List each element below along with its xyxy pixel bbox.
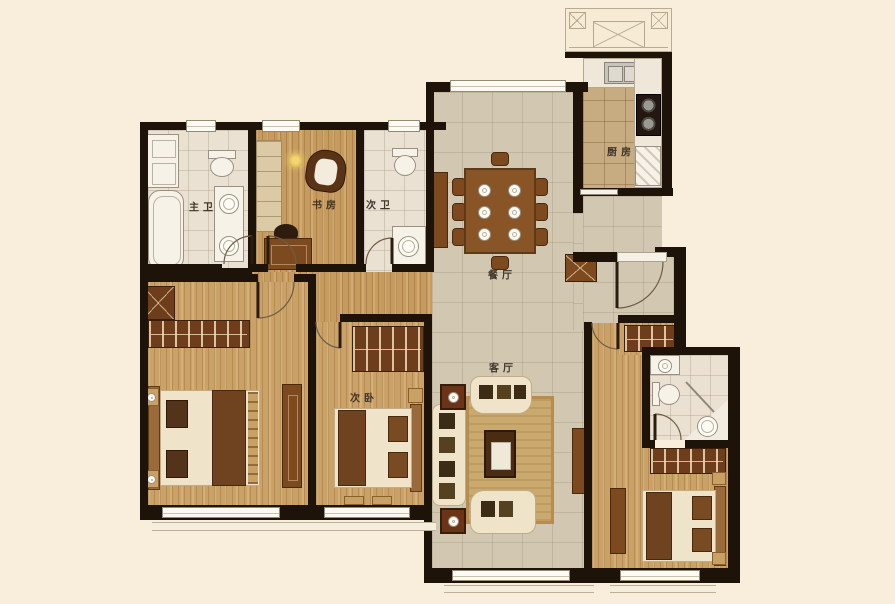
washer-door [152,140,176,158]
room-label-second-bedroom: 次卧 [350,390,378,405]
wall [618,315,676,323]
dining-chair [534,203,548,221]
duct-shaft [651,12,668,29]
floor-plan: 主卫 书房 次卫 餐厅 厨房 客厅 次卧 [0,0,895,604]
wall [573,252,617,262]
dining-chair [534,228,548,246]
dresser-suite [610,488,626,554]
bed-blanket [212,390,246,486]
sofa-main [432,404,466,506]
wall [356,122,364,272]
toilet-bowl [394,155,416,176]
coffee-table [484,430,516,478]
wall [140,122,148,520]
place-setting [478,228,491,241]
lamp-table [440,384,466,410]
bed-runner-fringe [248,392,258,484]
dining-chair [491,152,509,166]
window [186,120,216,132]
dining-chair [534,178,548,196]
sink-suite [658,359,672,373]
wall [426,82,434,272]
toilet-second [390,148,422,178]
armchair-cushion [313,158,338,187]
wardrobe-suite [650,448,726,474]
wall [296,264,366,272]
room-label-living: 客厅 [489,360,517,375]
toilet-bowl [658,384,680,405]
room-label-second-bath: 次卫 [366,197,394,212]
bay-window-sill [152,522,436,531]
sofa-cushion [479,385,493,399]
window [452,570,570,581]
lamp-table [440,508,466,534]
bed-pillow [692,496,712,520]
bench-stool [372,496,392,505]
elevator-lobby [565,8,672,52]
room-label-master-bath: 主卫 [189,199,217,214]
toilet-suite [652,378,682,410]
bench-stool [344,496,364,505]
cabinet-front [152,163,176,185]
wall [392,264,432,272]
bay-window-sill [610,585,716,593]
sink-2 [219,236,239,256]
lamp [448,516,459,527]
wall [642,440,655,448]
nightstand [712,552,726,565]
sideboard [432,172,448,248]
lamp [147,393,156,402]
shower-basin [697,416,718,437]
bed-pillow [388,452,408,478]
sofa-cushion [481,501,495,517]
desk-top [271,245,307,265]
sink-basin-left [608,66,623,82]
bed-pillow [692,528,712,552]
wall [685,440,738,448]
wall [674,247,686,355]
bed-blanket [646,492,672,560]
duct-shaft [569,12,586,29]
dresser-master [282,384,302,488]
wall [642,347,740,355]
window [450,80,566,92]
coffee-table-tray [491,442,511,470]
wall [140,274,258,282]
sofa-cushion [439,461,455,477]
window [388,120,420,132]
window [324,507,410,518]
place-setting [478,206,491,219]
wall [662,50,672,196]
wall [584,322,592,568]
loveseat [470,376,532,414]
bed-blanket [338,410,366,486]
sink-1 [219,194,239,214]
entry-hall-floor [583,196,662,252]
room-label-kitchen: 厨房 [607,144,635,159]
sofa-cushion [497,385,511,399]
elevator-shaft [593,21,645,48]
bed-master [148,386,260,490]
wardrobe-master [148,320,250,348]
sofa-cushion [514,385,526,399]
sink-second [398,236,419,257]
fridge [635,146,661,186]
wall [642,352,650,448]
wall [248,122,256,272]
lamp [147,475,156,484]
window [262,120,300,132]
ceiling-lamp [288,153,303,168]
bed-pillow [166,400,188,428]
bathtub-inner [153,196,181,266]
entry-door-threshold [617,252,667,262]
washer-cabinet [147,134,179,188]
wardrobe-second [352,326,424,372]
wall [250,264,268,272]
lobby-line [569,47,668,48]
suite-bath-sink-counter [650,355,680,375]
lamp [448,392,459,403]
window [162,507,280,518]
sofa-cushion [439,413,455,429]
sofa-cushion [499,501,513,517]
room-label-dining: 餐厅 [488,267,516,282]
gas-stove [636,94,661,136]
wall [308,274,316,520]
toilet-bowl [210,157,234,177]
wall [340,314,432,322]
bathtub [148,190,184,270]
nightstand [408,388,423,403]
bookshelf [256,140,282,232]
window [620,570,700,581]
nightstand [712,472,726,485]
bed-pillow [388,416,408,442]
toilet-master [206,150,240,178]
wall [424,322,432,583]
dresser-front [288,395,298,481]
place-setting [508,184,521,197]
place-setting [478,184,491,197]
dining-table [464,168,536,254]
bed-second [334,404,422,492]
room-label-study: 书房 [312,197,340,212]
wall [728,347,740,583]
place-setting [508,206,521,219]
sofa-cushion [439,437,455,453]
sofa-cushion [439,483,455,499]
chaise-sofa [470,490,536,534]
bay-window-sill [444,585,594,593]
kitchen-sliding-door [580,189,618,195]
bed-pillow [166,450,188,478]
place-setting [508,228,521,241]
